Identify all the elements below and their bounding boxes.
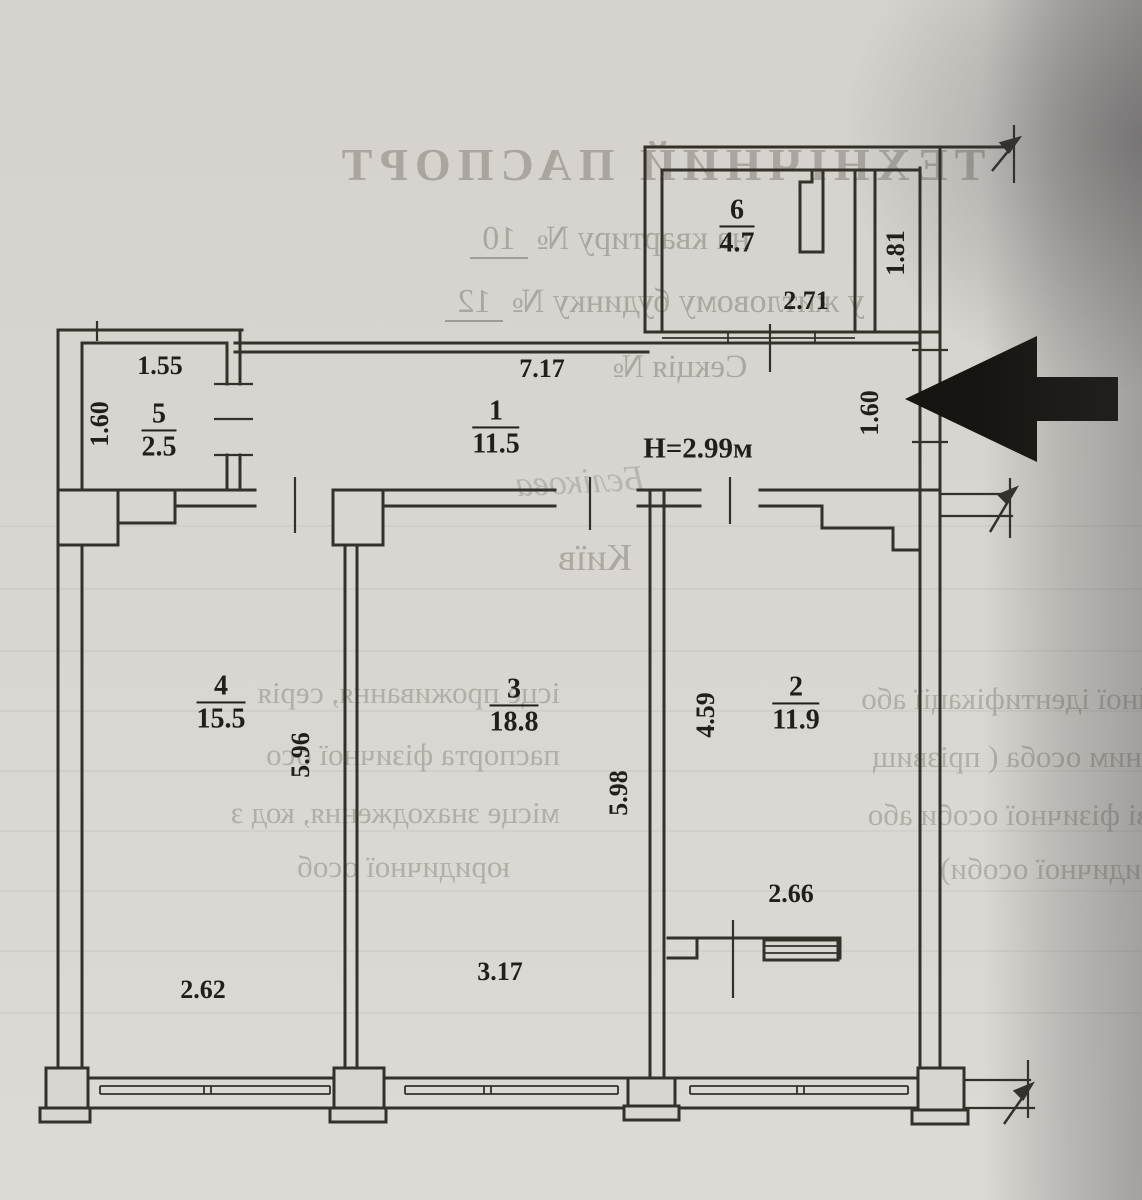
dim-room2-depth: 4.59 <box>691 692 721 738</box>
room-label-6: 6 4.7 <box>720 196 755 257</box>
floor-plan-drawing <box>0 0 1142 1200</box>
room-area: 2.5 <box>142 431 177 462</box>
room-number: 5 <box>142 400 177 431</box>
room-area: 15.5 <box>197 703 246 734</box>
dim-room3-width: 3.17 <box>477 957 523 987</box>
room-label-5: 5 2.5 <box>142 400 177 461</box>
room-number: 1 <box>472 397 519 428</box>
room-number: 6 <box>720 196 755 227</box>
scanned-floor-plan-page: ТЕХНІЧНИЙ ПАСПОРТ на квартиру № 10 у жит… <box>0 0 1142 1200</box>
room-area: 11.9 <box>772 704 819 735</box>
room-area: 11.5 <box>472 428 519 459</box>
dim-room4-width: 2.62 <box>180 975 226 1005</box>
dim-room6-width: 2.71 <box>783 286 829 316</box>
dim-room6-depth: 1.81 <box>881 230 911 276</box>
room-label-1: 1 11.5 <box>472 397 519 458</box>
ceiling-height-note: H=2.99м <box>643 433 753 466</box>
dim-room2-width: 2.66 <box>768 879 814 909</box>
room-label-4: 4 15.5 <box>197 672 246 733</box>
room-area: 18.8 <box>490 706 539 737</box>
room-label-2: 2 11.9 <box>772 673 819 734</box>
dim-corridor-width: 7.17 <box>519 354 565 384</box>
room-area: 4.7 <box>720 227 755 258</box>
room-number: 4 <box>197 672 246 703</box>
dim-room5-width: 1.55 <box>137 351 183 381</box>
dim-room3-depth: 5.98 <box>604 770 634 816</box>
room-number: 3 <box>490 675 539 706</box>
room-number: 2 <box>772 673 819 704</box>
dim-balcony-opening: 1.60 <box>855 390 885 436</box>
room-label-3: 3 18.8 <box>490 675 539 736</box>
dim-room5-depth: 1.60 <box>85 401 115 447</box>
dim-room4-depth: 5.96 <box>286 732 316 778</box>
